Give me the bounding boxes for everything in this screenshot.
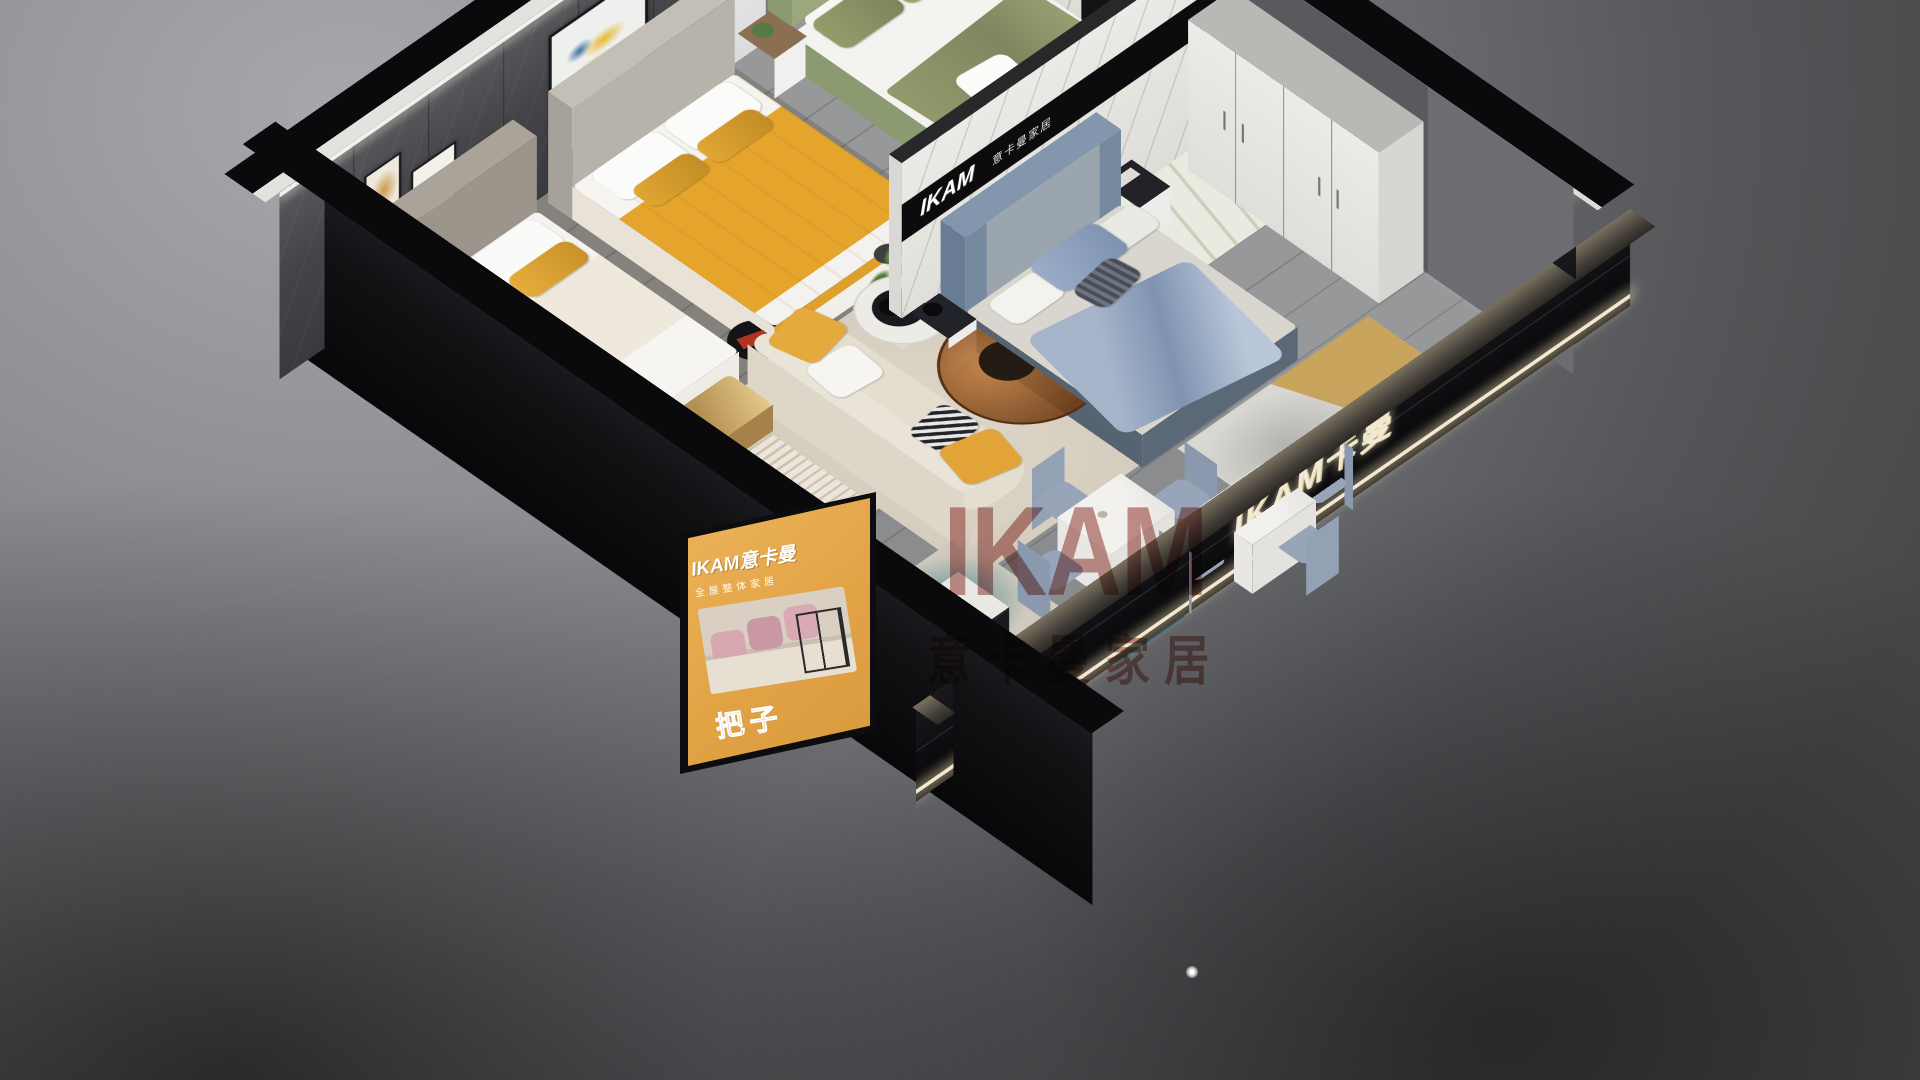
wardrobe-handle bbox=[1223, 111, 1225, 131]
showroom-render: Joy IKAM 意卡曼家居 bbox=[0, 0, 1920, 1080]
wardrobe-handle bbox=[1337, 189, 1339, 209]
poster-photo bbox=[697, 586, 857, 694]
metal-rack-icon bbox=[795, 607, 850, 673]
wardrobe-handle bbox=[1242, 123, 1244, 143]
pink-pillow bbox=[746, 615, 785, 652]
poster-board: IKAM意卡曼 全屋整体家居 把子 bbox=[688, 498, 870, 766]
wardrobe-side bbox=[1379, 122, 1424, 304]
yellow-bed-headboard-side bbox=[548, 91, 572, 219]
wardrobe-handle bbox=[1318, 176, 1320, 196]
showroom-floor: Joy IKAM 意卡曼家居 bbox=[308, 0, 1553, 792]
candlestick-icon bbox=[1095, 510, 1109, 520]
floor-light-glint bbox=[1186, 966, 1198, 978]
